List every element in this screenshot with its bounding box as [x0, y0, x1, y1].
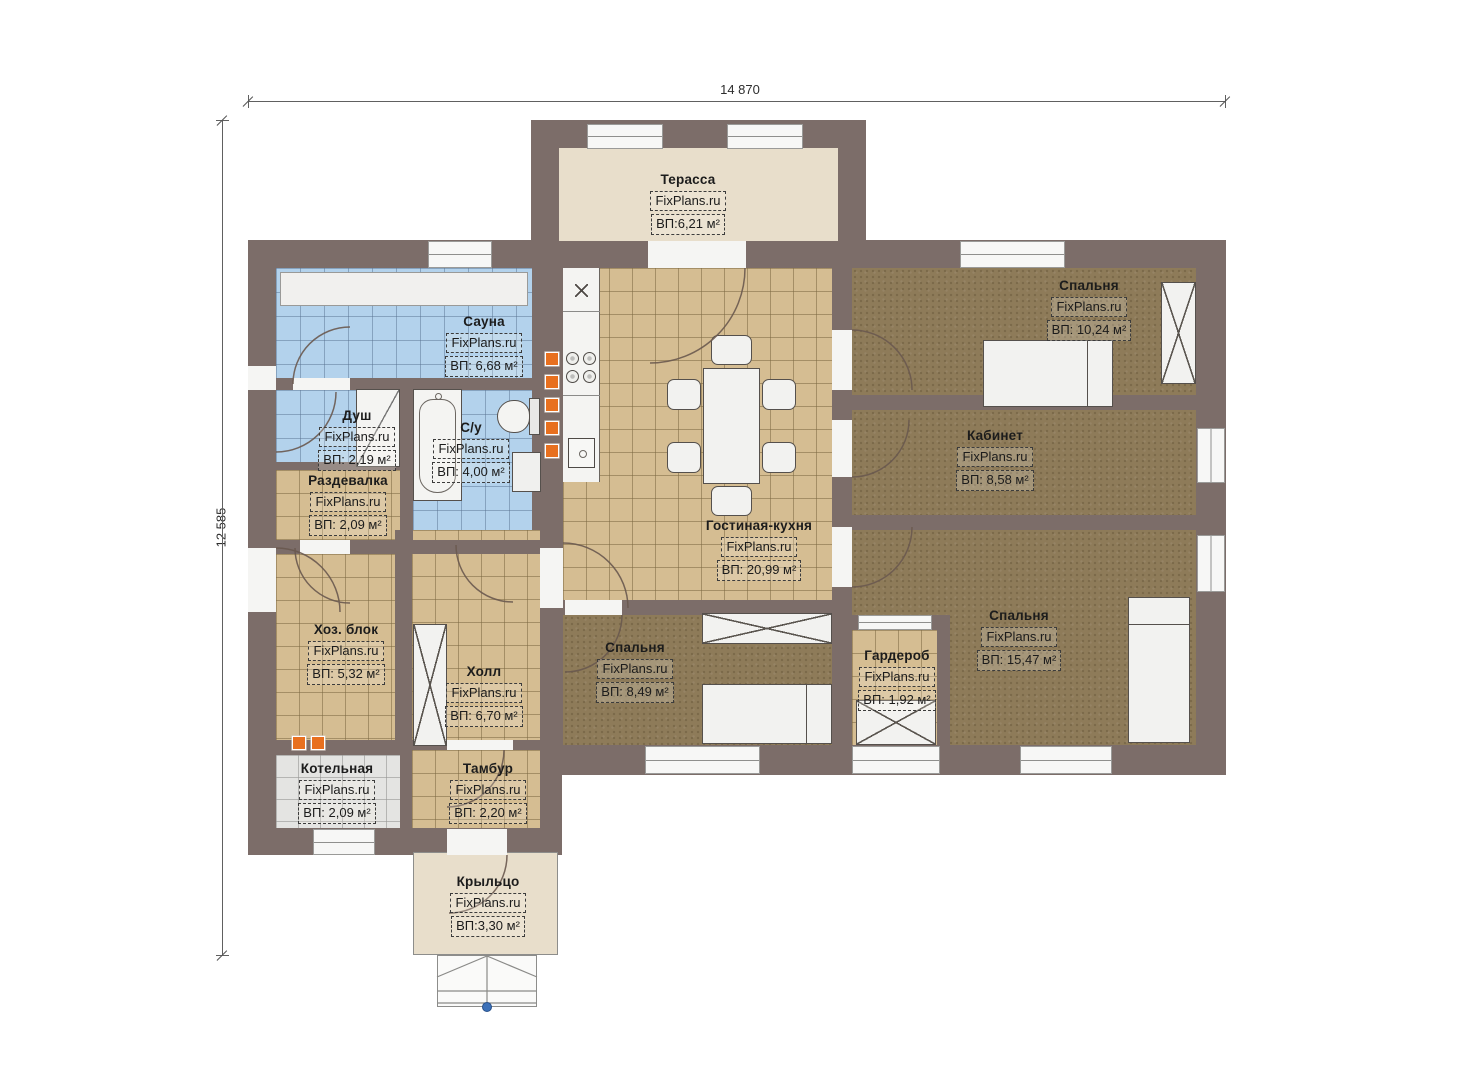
window: [727, 124, 803, 149]
room-label-shower: Душ FixPlans.ru ВП: 2,19 м²: [312, 408, 402, 471]
room-label-porch: Крыльцо FixPlans.ru ВП:3,30 м²: [434, 874, 542, 937]
room-label-bedroom-center: Спальня FixPlans.ru ВП: 8,49 м²: [588, 640, 682, 703]
window: [960, 241, 1065, 268]
door-opening-terrace: [648, 241, 746, 268]
dining-table: [703, 368, 760, 484]
chair: [667, 379, 701, 410]
room-area: ВП: 1,92 м²: [858, 690, 935, 711]
watermark: FixPlans.ru: [319, 427, 394, 448]
chair: [667, 442, 701, 473]
sauna-bench: [280, 272, 528, 306]
dimension-height-label: 12 585: [214, 493, 229, 563]
room-area: ВП: 4,00 м²: [432, 462, 509, 483]
wardrobe-x-icon: [1161, 282, 1196, 384]
room-label-hall: Холл FixPlans.ru ВП: 6,70 м²: [438, 664, 530, 727]
chair: [711, 486, 752, 516]
chair: [762, 379, 796, 410]
chair: [762, 442, 796, 473]
heater-icon: [545, 375, 559, 389]
watermark: FixPlans.ru: [721, 537, 796, 558]
door-opening-sauna: [293, 378, 350, 390]
bed-icon: [983, 340, 1113, 407]
room-label-living-kitchen: Гостиная-кухня FixPlans.ru ВП: 20,99 м²: [696, 518, 822, 581]
wardrobe-x-icon: [702, 613, 832, 644]
watermark: FixPlans.ru: [310, 492, 385, 513]
window: [852, 746, 940, 774]
window-wardrobe: [858, 615, 932, 630]
heater-icon: [545, 398, 559, 412]
watermark: FixPlans.ru: [957, 447, 1032, 468]
watermark: FixPlans.ru: [981, 627, 1056, 648]
window: [428, 241, 492, 268]
heater-icon: [545, 352, 559, 366]
window: [645, 746, 760, 774]
sink-icon: [568, 438, 595, 468]
room-label-vestibule: Тамбур FixPlans.ru ВП: 2,20 м²: [440, 761, 536, 824]
watermark: FixPlans.ru: [446, 683, 521, 704]
room-area: ВП:6,21 м²: [651, 214, 725, 235]
watermark: FixPlans.ru: [650, 191, 725, 212]
watermark: FixPlans.ru: [859, 667, 934, 688]
room-area: ВП: 6,68 м²: [445, 356, 522, 377]
watermark: FixPlans.ru: [597, 659, 672, 680]
window: [313, 829, 375, 855]
heater-icon: [311, 736, 325, 750]
fridge-x-icon: [575, 284, 588, 297]
watermark: FixPlans.ru: [1051, 297, 1126, 318]
room-area: ВП: 5,32 м²: [307, 664, 384, 685]
door-opening-vestibule: [447, 740, 513, 750]
room-area: ВП: 2,09 м²: [298, 803, 375, 824]
stove-icon: [563, 348, 600, 396]
window: [1020, 746, 1112, 774]
room-area: ВП: 8,49 м²: [596, 682, 673, 703]
fridge-icon: [563, 270, 600, 312]
porch-steps: [437, 955, 537, 1007]
room-area: ВП: 6,70 м²: [445, 706, 522, 727]
window: [1197, 428, 1225, 483]
room-area: ВП: 15,47 м²: [977, 650, 1062, 671]
door-opening-office: [832, 420, 852, 477]
room-label-sauna: Сауна FixPlans.ru ВП: 6,68 м²: [436, 314, 532, 377]
room-label-dressing: Раздевалка FixPlans.ru ВП: 2,09 м²: [298, 473, 398, 536]
room-area: ВП: 2,09 м²: [309, 515, 386, 536]
room-area: ВП: 2,20 м²: [449, 803, 526, 824]
dimension-width-line: [248, 101, 1226, 102]
door-opening-bedroom-right: [832, 527, 852, 587]
dimension-height-line: [222, 120, 223, 955]
room-label-utility: Хоз. блок FixPlans.ru ВП: 5,32 м²: [294, 622, 398, 685]
door-opening-bedroom-top: [832, 330, 852, 390]
room-label-boiler: Котельная FixPlans.ru ВП: 2,09 м²: [285, 761, 389, 824]
door-opening-hall-kitchen: [540, 548, 563, 608]
heater-icon: [545, 421, 559, 435]
door-opening-utility: [248, 548, 276, 612]
bed-icon: [702, 684, 832, 744]
window: [587, 124, 663, 149]
watermark: FixPlans.ru: [450, 893, 525, 914]
watermark: FixPlans.ru: [308, 641, 383, 662]
room-label-terrace: Терасса FixPlans.ru ВП:6,21 м²: [628, 172, 748, 235]
wall-partition: [852, 515, 1196, 530]
room-label-wc: С/у FixPlans.ru ВП: 4,00 м²: [424, 420, 518, 483]
watermark: FixPlans.ru: [450, 780, 525, 801]
heater-icon: [292, 736, 306, 750]
kitchen-counter: [563, 268, 600, 482]
watermark: FixPlans.ru: [433, 439, 508, 460]
heater-icon: [545, 444, 559, 458]
door-opening-utility-top: [300, 540, 350, 554]
door-opening-shower: [248, 366, 276, 390]
room-area: ВП: 8,58 м²: [956, 470, 1033, 491]
watermark: FixPlans.ru: [446, 333, 521, 354]
room-area: ВП:3,30 м²: [451, 916, 525, 937]
window: [1197, 535, 1225, 592]
watermark: FixPlans.ru: [299, 780, 374, 801]
room-area: ВП: 20,99 м²: [717, 560, 802, 581]
chair: [711, 335, 752, 365]
room-area: ВП: 10,24 м²: [1047, 320, 1132, 341]
room-label-bedroom-right: Спальня FixPlans.ru ВП: 15,47 м²: [970, 608, 1068, 671]
room-label-wardrobe: Гардероб FixPlans.ru ВП: 1,92 м²: [851, 648, 943, 711]
dimension-width-label: 14 870: [700, 82, 780, 97]
door-opening-porch: [447, 829, 507, 855]
toilet-tank-icon: [529, 398, 540, 435]
bed-icon: [1128, 597, 1190, 743]
room-label-bedroom-top: Спальня FixPlans.ru ВП: 10,24 м²: [1040, 278, 1138, 341]
room-area: ВП: 2,19 м²: [318, 450, 395, 471]
room-label-office: Кабинет FixPlans.ru ВП: 8,58 м²: [948, 428, 1042, 491]
wall-partition: [400, 755, 412, 828]
door-opening-bedroom-center: [565, 600, 622, 615]
floor-plan-canvas: 14 870 12 585: [0, 0, 1474, 1080]
